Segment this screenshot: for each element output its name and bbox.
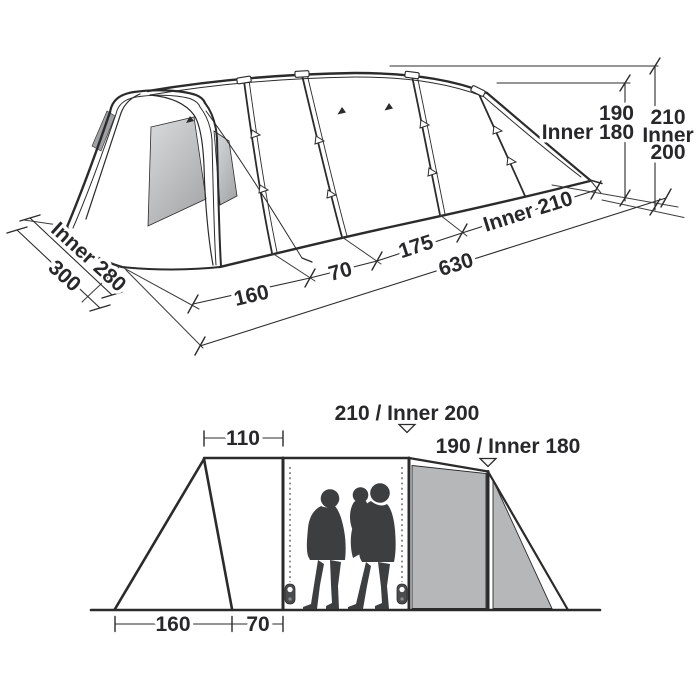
pole-arch-2b xyxy=(307,74,347,236)
clip xyxy=(259,185,268,193)
door-sill xyxy=(122,267,220,269)
pole-arches xyxy=(186,71,525,253)
rear-height-label: 190 / Inner 180 xyxy=(436,435,581,458)
pole-arch-1b xyxy=(249,80,277,252)
tent-spec-diagram: 160 70 175 630 Inner 210 Inner 280 300 xyxy=(0,0,700,700)
clip xyxy=(327,190,336,198)
ridge-inner-line xyxy=(150,77,482,96)
diagram-svg: 160 70 175 630 Inner 210 Inner 280 300 xyxy=(0,0,700,700)
dim-label-inner-180: Inner 180 xyxy=(542,121,634,144)
dim-label-base-70: 70 xyxy=(246,613,269,636)
down-arrow-icon xyxy=(399,425,415,433)
dim-label-70: 70 xyxy=(326,258,355,286)
pole-arch-1 xyxy=(244,81,272,253)
rear-room-panel xyxy=(412,466,486,609)
pole-arch-3b xyxy=(417,75,445,214)
peak-height-label: 210 / Inner 200 xyxy=(335,402,480,425)
width-dimensions: Inner 280 300 xyxy=(7,215,130,311)
pole-arch-4 xyxy=(478,92,525,196)
pole-clip-marks xyxy=(251,120,516,198)
vent-hook-icon xyxy=(338,107,347,115)
dim-label-inner-210: Inner 210 xyxy=(481,187,576,237)
dim-label-peak-inner-value: 200 xyxy=(650,141,685,164)
front-guy-stake xyxy=(302,258,312,262)
sleeve-2 xyxy=(295,71,309,78)
elevation-panels xyxy=(412,466,552,609)
dim-label-630: 630 xyxy=(436,249,476,281)
tent-perspective-view: 160 70 175 630 Inner 210 Inner 280 300 xyxy=(7,58,694,355)
adult-silhouette-left xyxy=(303,489,346,609)
porch-inner-slope xyxy=(204,459,232,609)
vent-hook-icons xyxy=(186,103,393,123)
dim-label-base-160: 160 xyxy=(155,613,190,636)
zipper-pull-icon xyxy=(397,584,407,604)
sleeve-3 xyxy=(405,71,420,79)
down-arrow-icon xyxy=(480,459,496,467)
tent-elevation-view: 110 160 70 210 / Inner 200 190 / Inner 1… xyxy=(91,402,600,636)
pole-arch-2 xyxy=(302,75,342,237)
dim-label-110: 110 xyxy=(226,427,260,450)
dim-label-175: 175 xyxy=(396,230,437,263)
front-arch-inner xyxy=(116,95,200,114)
dim-total-line xyxy=(200,198,666,346)
dim-label-160: 160 xyxy=(232,281,271,311)
people-silhouettes xyxy=(303,483,396,609)
clip xyxy=(315,136,324,144)
rear-slope-panel xyxy=(493,480,552,609)
ridge-line xyxy=(148,73,487,93)
pole-arch-3 xyxy=(412,76,440,215)
vent-hook-icon xyxy=(385,103,394,111)
clip xyxy=(493,126,502,134)
porch-front-slope xyxy=(115,459,204,609)
front-left-edge-inner xyxy=(73,114,116,228)
pole-sleeve-marks xyxy=(237,71,486,97)
clip xyxy=(251,130,260,138)
dim-chain-ticks xyxy=(188,181,671,355)
clip xyxy=(507,157,516,165)
zipper-pull-icon xyxy=(285,584,295,604)
tent-body-outline xyxy=(67,73,602,269)
front-window-large xyxy=(148,117,206,226)
